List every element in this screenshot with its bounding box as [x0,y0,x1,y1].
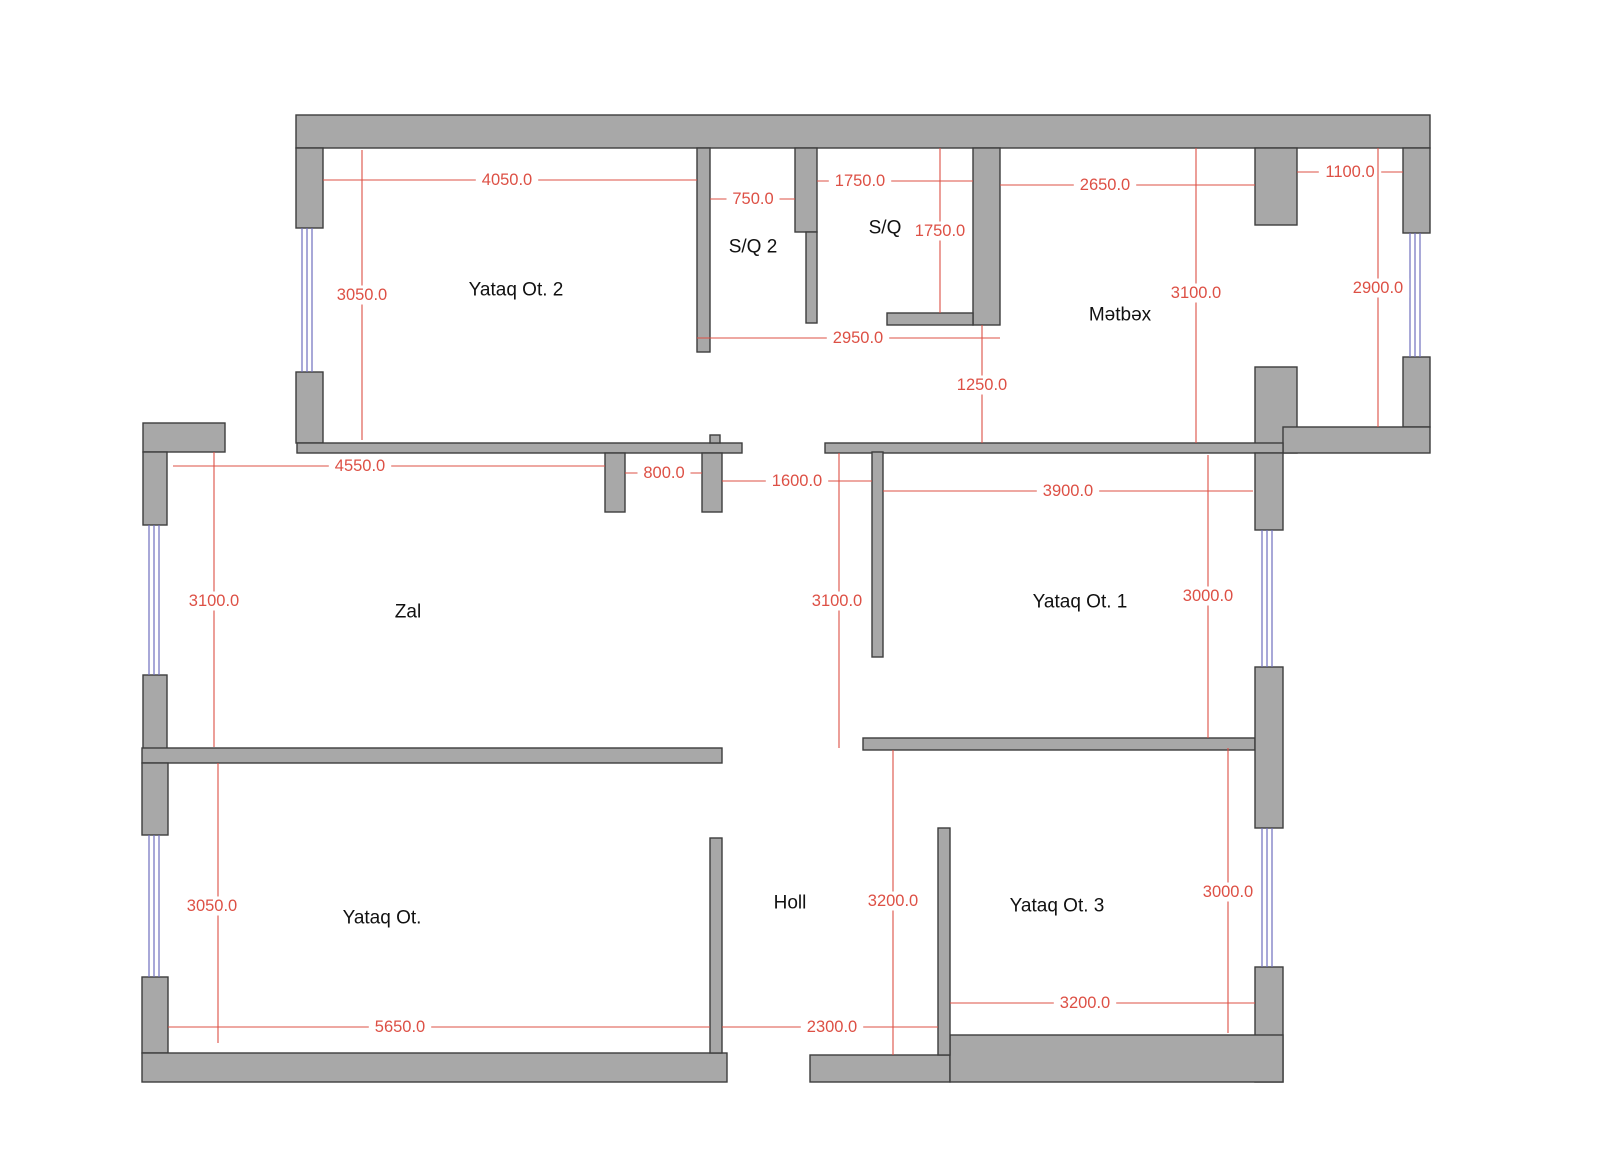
dimension-label: 3900.0 [1043,482,1093,500]
wall-segment [710,838,722,1053]
wall-segment [973,148,1000,325]
wall-segment [938,828,950,1055]
dimension-label: 3000.0 [1183,587,1233,605]
dimension-label: 3050.0 [337,286,387,304]
dimension-label: 3100.0 [189,592,239,610]
floor-plan-page: 4050.0750.01750.02650.01100.02950.04550.… [0,0,1600,1158]
wall-segment [142,748,722,763]
wall-segment [296,115,1430,148]
wall-segment [1255,667,1283,828]
wall-segment [1403,148,1430,233]
wall-segment [605,453,625,512]
dimension-label: 1100.0 [1325,163,1374,181]
wall-segment [697,148,710,352]
room-label: Zal [395,602,421,623]
wall-segment [143,452,167,525]
wall-segment [1403,357,1430,427]
floor-plan-drawing: 4050.0750.01750.02650.01100.02950.04550.… [0,0,1600,1158]
wall-segment [296,148,323,228]
dimension-label: 3050.0 [187,897,237,915]
dimension-label: 2650.0 [1080,176,1130,194]
wall-segment [297,443,742,453]
wall-segment [1255,453,1283,530]
wall-segment [702,453,722,512]
dimension-label: 5650.0 [375,1018,425,1036]
room-label: Yataq Ot. 2 [469,280,564,301]
wall-segment [1283,427,1430,453]
dimension-label: 2900.0 [1353,279,1403,297]
wall-segment [710,435,720,443]
wall-segment [143,423,225,452]
room-label: S/Q [869,218,902,239]
wall-segment [872,452,883,657]
wall-segment [825,443,1283,453]
room-label: Yataq Ot. 1 [1033,592,1128,613]
wall-segment [863,738,1255,750]
dimension-label: 3100.0 [812,592,862,610]
dimension-label: 3100.0 [1171,284,1221,302]
room-label: Yataq Ot. 3 [1010,896,1105,917]
dimension-label: 2950.0 [833,329,883,347]
room-label: Yataq Ot. [343,908,422,929]
wall-segment [806,232,817,323]
wall-segment [887,313,973,325]
wall-segment [810,1055,950,1082]
dimension-label: 3200.0 [1060,994,1110,1012]
dimension-label: 2300.0 [807,1018,857,1036]
wall-segment [143,675,167,750]
room-label: Mətbəx [1089,305,1152,326]
wall-segment [1255,148,1297,225]
wall-segment [142,977,168,1053]
room-label: S/Q 2 [729,237,778,258]
dimension-label: 4550.0 [335,457,385,475]
wall-segment [795,148,817,232]
wall-segment [950,1035,1283,1082]
wall-segment [296,372,323,443]
dimension-label: 4050.0 [482,171,532,189]
dimension-label: 3200.0 [868,892,918,910]
room-label: Holl [774,893,807,914]
wall-segment [142,763,168,835]
dimension-label: 1600.0 [772,472,822,490]
dimension-label: 1250.0 [957,376,1007,394]
dimension-label: 800.0 [643,464,684,482]
dimension-label: 750.0 [732,190,773,208]
dimension-label: 1750.0 [835,172,885,190]
dimension-label: 3000.0 [1203,883,1253,901]
dimension-label: 1750.0 [915,222,965,240]
wall-segment [142,1053,727,1082]
